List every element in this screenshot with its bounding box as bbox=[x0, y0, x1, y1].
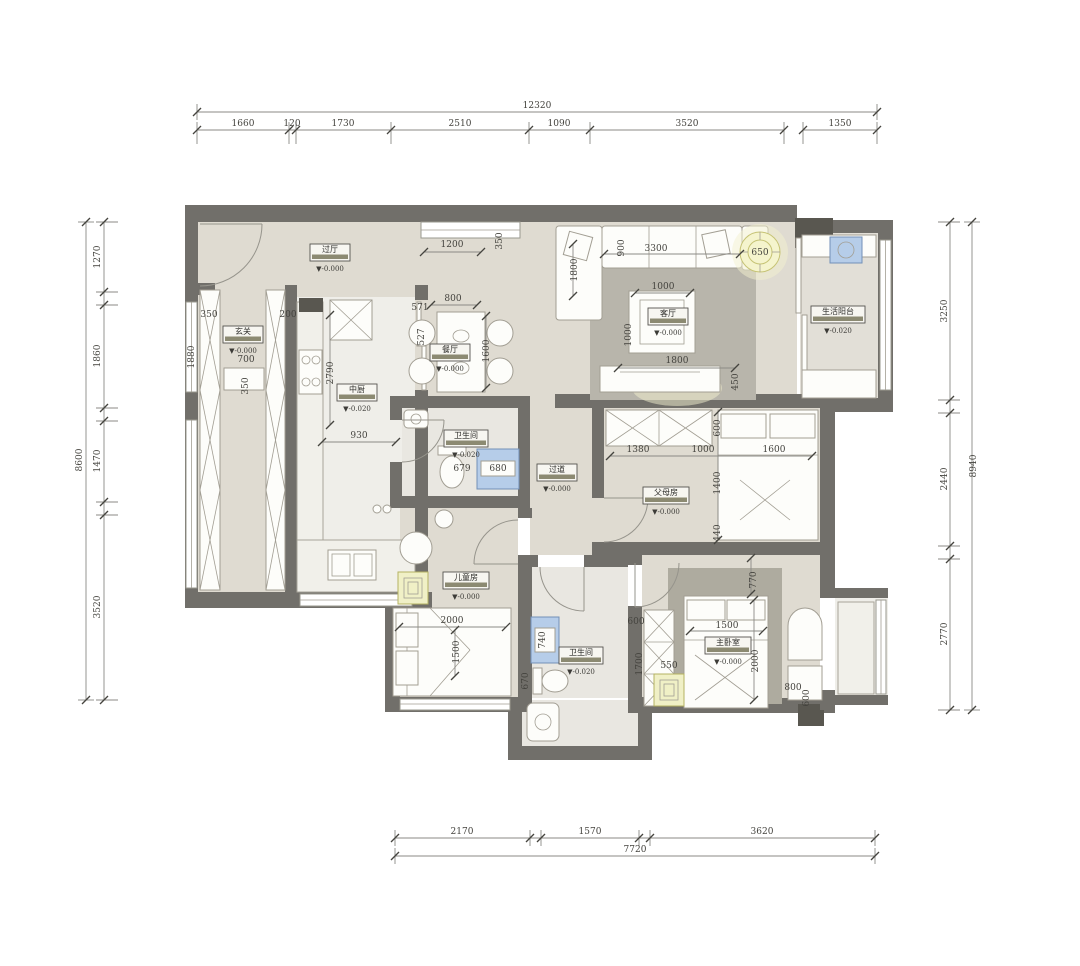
washing-machine bbox=[830, 237, 862, 263]
bath2-sink bbox=[527, 703, 559, 741]
dim-right-seg: 3250 bbox=[940, 299, 950, 322]
floor-plan: 12320 1660 120 1730 2510 1090 3520 1350 … bbox=[0, 0, 1080, 966]
svg-text:▼-0.020: ▼-0.020 bbox=[343, 405, 371, 413]
dim-bottom-seg: 3620 bbox=[751, 827, 774, 837]
svg-text:父母房: 父母房 bbox=[654, 487, 678, 497]
dim-master-wardrobe-width: 600 bbox=[627, 617, 644, 627]
light-switch bbox=[383, 505, 391, 513]
dim-top-seg: 1090 bbox=[548, 119, 571, 129]
dim-bath2-toilet: 670 bbox=[521, 672, 531, 689]
dim-kids-bed-length: 2000 bbox=[441, 616, 464, 626]
dim-parents-bed: 1600 bbox=[763, 445, 786, 455]
dim-top-total: 12320 bbox=[523, 101, 552, 111]
dim-kitchen-width: 930 bbox=[350, 431, 367, 441]
dim-bottom-total: 7720 bbox=[624, 845, 647, 855]
fridge bbox=[330, 300, 372, 340]
svg-text:餐厅: 餐厅 bbox=[442, 345, 458, 354]
dim-bottom-seg: 1570 bbox=[579, 827, 602, 837]
svg-text:客厅: 客厅 bbox=[660, 308, 676, 318]
dim-top-seg: 120 bbox=[283, 119, 300, 129]
dim-entry-cabinet: 350 bbox=[200, 310, 217, 320]
dim-bath2-shower: 740 bbox=[538, 631, 548, 648]
entry-window-2 bbox=[186, 420, 197, 588]
svg-text:▼-0.000: ▼-0.000 bbox=[436, 365, 464, 373]
kids-rug bbox=[398, 572, 428, 604]
dim-left-seg: 1860 bbox=[93, 344, 103, 367]
dim-master-table: 800 bbox=[784, 683, 801, 693]
kids-window bbox=[400, 699, 510, 710]
dim-master-rug: 550 bbox=[660, 661, 677, 671]
kitchen-sink bbox=[328, 550, 376, 580]
dim-left-total: 8600 bbox=[75, 448, 85, 471]
svg-text:中厨: 中厨 bbox=[349, 384, 365, 394]
parents-bed bbox=[718, 410, 818, 540]
tv-console bbox=[600, 366, 720, 392]
parents-wardrobe bbox=[606, 410, 712, 446]
dim-chair-depth: 527 bbox=[417, 328, 427, 345]
dim-parents-seg3: 440 bbox=[713, 524, 723, 541]
dim-top-seg: 2510 bbox=[449, 119, 472, 129]
svg-text:过厅: 过厅 bbox=[322, 244, 338, 254]
dim-chaise-length: 1800 bbox=[570, 258, 580, 281]
dim-right-total: 8940 bbox=[969, 454, 979, 477]
entry-closet-left bbox=[200, 290, 220, 590]
dim-top-seg: 1730 bbox=[332, 119, 355, 129]
bay-window-seat bbox=[838, 602, 874, 694]
dim-kitchen-length: 2790 bbox=[326, 361, 336, 384]
svg-text:▼-0.020: ▼-0.020 bbox=[452, 451, 480, 459]
dim-coffee-table-depth: 1000 bbox=[624, 323, 634, 346]
svg-text:玄关: 玄关 bbox=[235, 326, 251, 336]
svg-text:卫生间: 卫生间 bbox=[454, 430, 478, 440]
dim-right-seg: 2440 bbox=[940, 467, 950, 490]
dim-bench-width: 700 bbox=[237, 355, 254, 365]
svg-text:卫生间: 卫生间 bbox=[569, 647, 593, 657]
dim-dining-width: 800 bbox=[444, 294, 461, 304]
dim-left-seg: 3520 bbox=[93, 595, 103, 618]
dim-parents-wardrobe: 1380 bbox=[627, 445, 650, 455]
dim-top-seg: 1350 bbox=[829, 119, 852, 129]
dim-top-seg: 3520 bbox=[676, 119, 699, 129]
dim-table-length: 1600 bbox=[482, 339, 492, 362]
svg-text:▼-0.000: ▼-0.000 bbox=[654, 329, 682, 337]
dim-chair-width: 571 bbox=[411, 303, 428, 313]
dim-bottom-seg: 2170 bbox=[451, 827, 474, 837]
dim-master-bed-width: 1500 bbox=[716, 621, 739, 631]
dim-coffee-table-width: 1000 bbox=[652, 282, 675, 292]
dim-foyer-window: 1200 bbox=[441, 240, 464, 250]
kitchen-tall-cabinet bbox=[299, 298, 323, 312]
entry-closet-right bbox=[266, 290, 285, 590]
svg-text:儿童房: 儿童房 bbox=[454, 572, 478, 582]
svg-text:▼-0.000: ▼-0.000 bbox=[543, 485, 571, 493]
dim-entry-cabinet: 200 bbox=[279, 310, 296, 320]
dim-left-seg: 1470 bbox=[93, 449, 103, 472]
balcony-counter-bottom bbox=[802, 370, 876, 398]
svg-text:▼-0.020: ▼-0.020 bbox=[824, 327, 852, 335]
bay-window bbox=[876, 600, 886, 694]
dim-bath1-toilet: 679 bbox=[453, 464, 470, 474]
dim-foyer-window-depth: 350 bbox=[495, 232, 505, 249]
dim-kids-bed-width: 1500 bbox=[452, 640, 462, 663]
svg-text:▼-0.000: ▼-0.000 bbox=[714, 658, 742, 666]
dining-chair bbox=[409, 358, 435, 384]
svg-text:生活阳台: 生活阳台 bbox=[822, 306, 854, 316]
dim-parents-gap: 1000 bbox=[692, 445, 715, 455]
dim-bath1-shower: 680 bbox=[489, 464, 506, 474]
dim-parents-seg2: 1400 bbox=[713, 471, 723, 494]
light-switch bbox=[373, 505, 381, 513]
bath2-toilet bbox=[533, 668, 568, 694]
dim-bench-depth: 350 bbox=[241, 377, 251, 394]
dim-master-seg1: 770 bbox=[749, 571, 759, 588]
floor-plan-page: 12320 1660 120 1730 2510 1090 3520 1350 … bbox=[0, 0, 1080, 966]
foyer-window bbox=[421, 222, 520, 238]
dim-tv-width: 1800 bbox=[666, 356, 689, 366]
svg-text:▼-0.020: ▼-0.020 bbox=[567, 668, 595, 676]
dim-left-seg: 1270 bbox=[93, 245, 103, 268]
kids-stool bbox=[435, 510, 453, 528]
svg-text:▼-0.000: ▼-0.000 bbox=[652, 508, 680, 516]
master-rug-small bbox=[654, 674, 684, 706]
dim-parents-seg1: 600 bbox=[713, 419, 723, 436]
dim-right-seg: 2770 bbox=[940, 622, 950, 645]
stove bbox=[299, 350, 322, 394]
balcony-window bbox=[880, 240, 891, 390]
master-armchair bbox=[788, 608, 822, 660]
dim-tv-depth: 450 bbox=[731, 373, 741, 390]
kitchen-window bbox=[300, 594, 412, 606]
dim-top-seg: 1660 bbox=[232, 119, 255, 129]
svg-text:主卧室: 主卧室 bbox=[716, 637, 740, 647]
svg-text:▼-0.000: ▼-0.000 bbox=[452, 593, 480, 601]
kids-table bbox=[400, 532, 432, 564]
dim-sofa-depth: 900 bbox=[617, 239, 627, 256]
dim-master-wardrobe-length: 1700 bbox=[635, 652, 645, 675]
svg-text:过道: 过道 bbox=[549, 464, 565, 474]
dim-entry-height: 1880 bbox=[187, 345, 197, 368]
dim-sofa-length: 3300 bbox=[645, 244, 668, 254]
dim-master-bed-length: 2000 bbox=[751, 649, 761, 672]
svg-text:▼-0.000: ▼-0.000 bbox=[229, 347, 257, 355]
bath1-sink bbox=[404, 410, 428, 428]
svg-text:▼-0.000: ▼-0.000 bbox=[316, 265, 344, 273]
dim-fan-diameter: 650 bbox=[751, 248, 768, 258]
dim-master-table-depth: 600 bbox=[802, 689, 812, 706]
